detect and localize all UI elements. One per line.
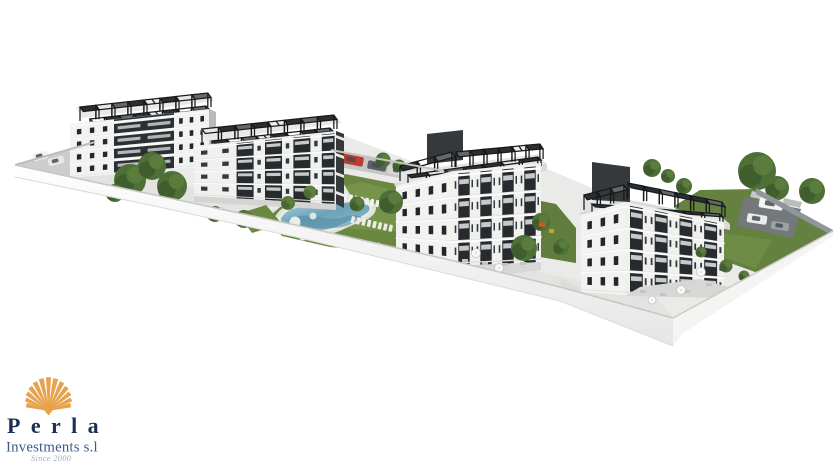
- svg-text:Since 2000: Since 2000: [31, 454, 71, 463]
- svg-text:Perla: Perla: [7, 413, 109, 438]
